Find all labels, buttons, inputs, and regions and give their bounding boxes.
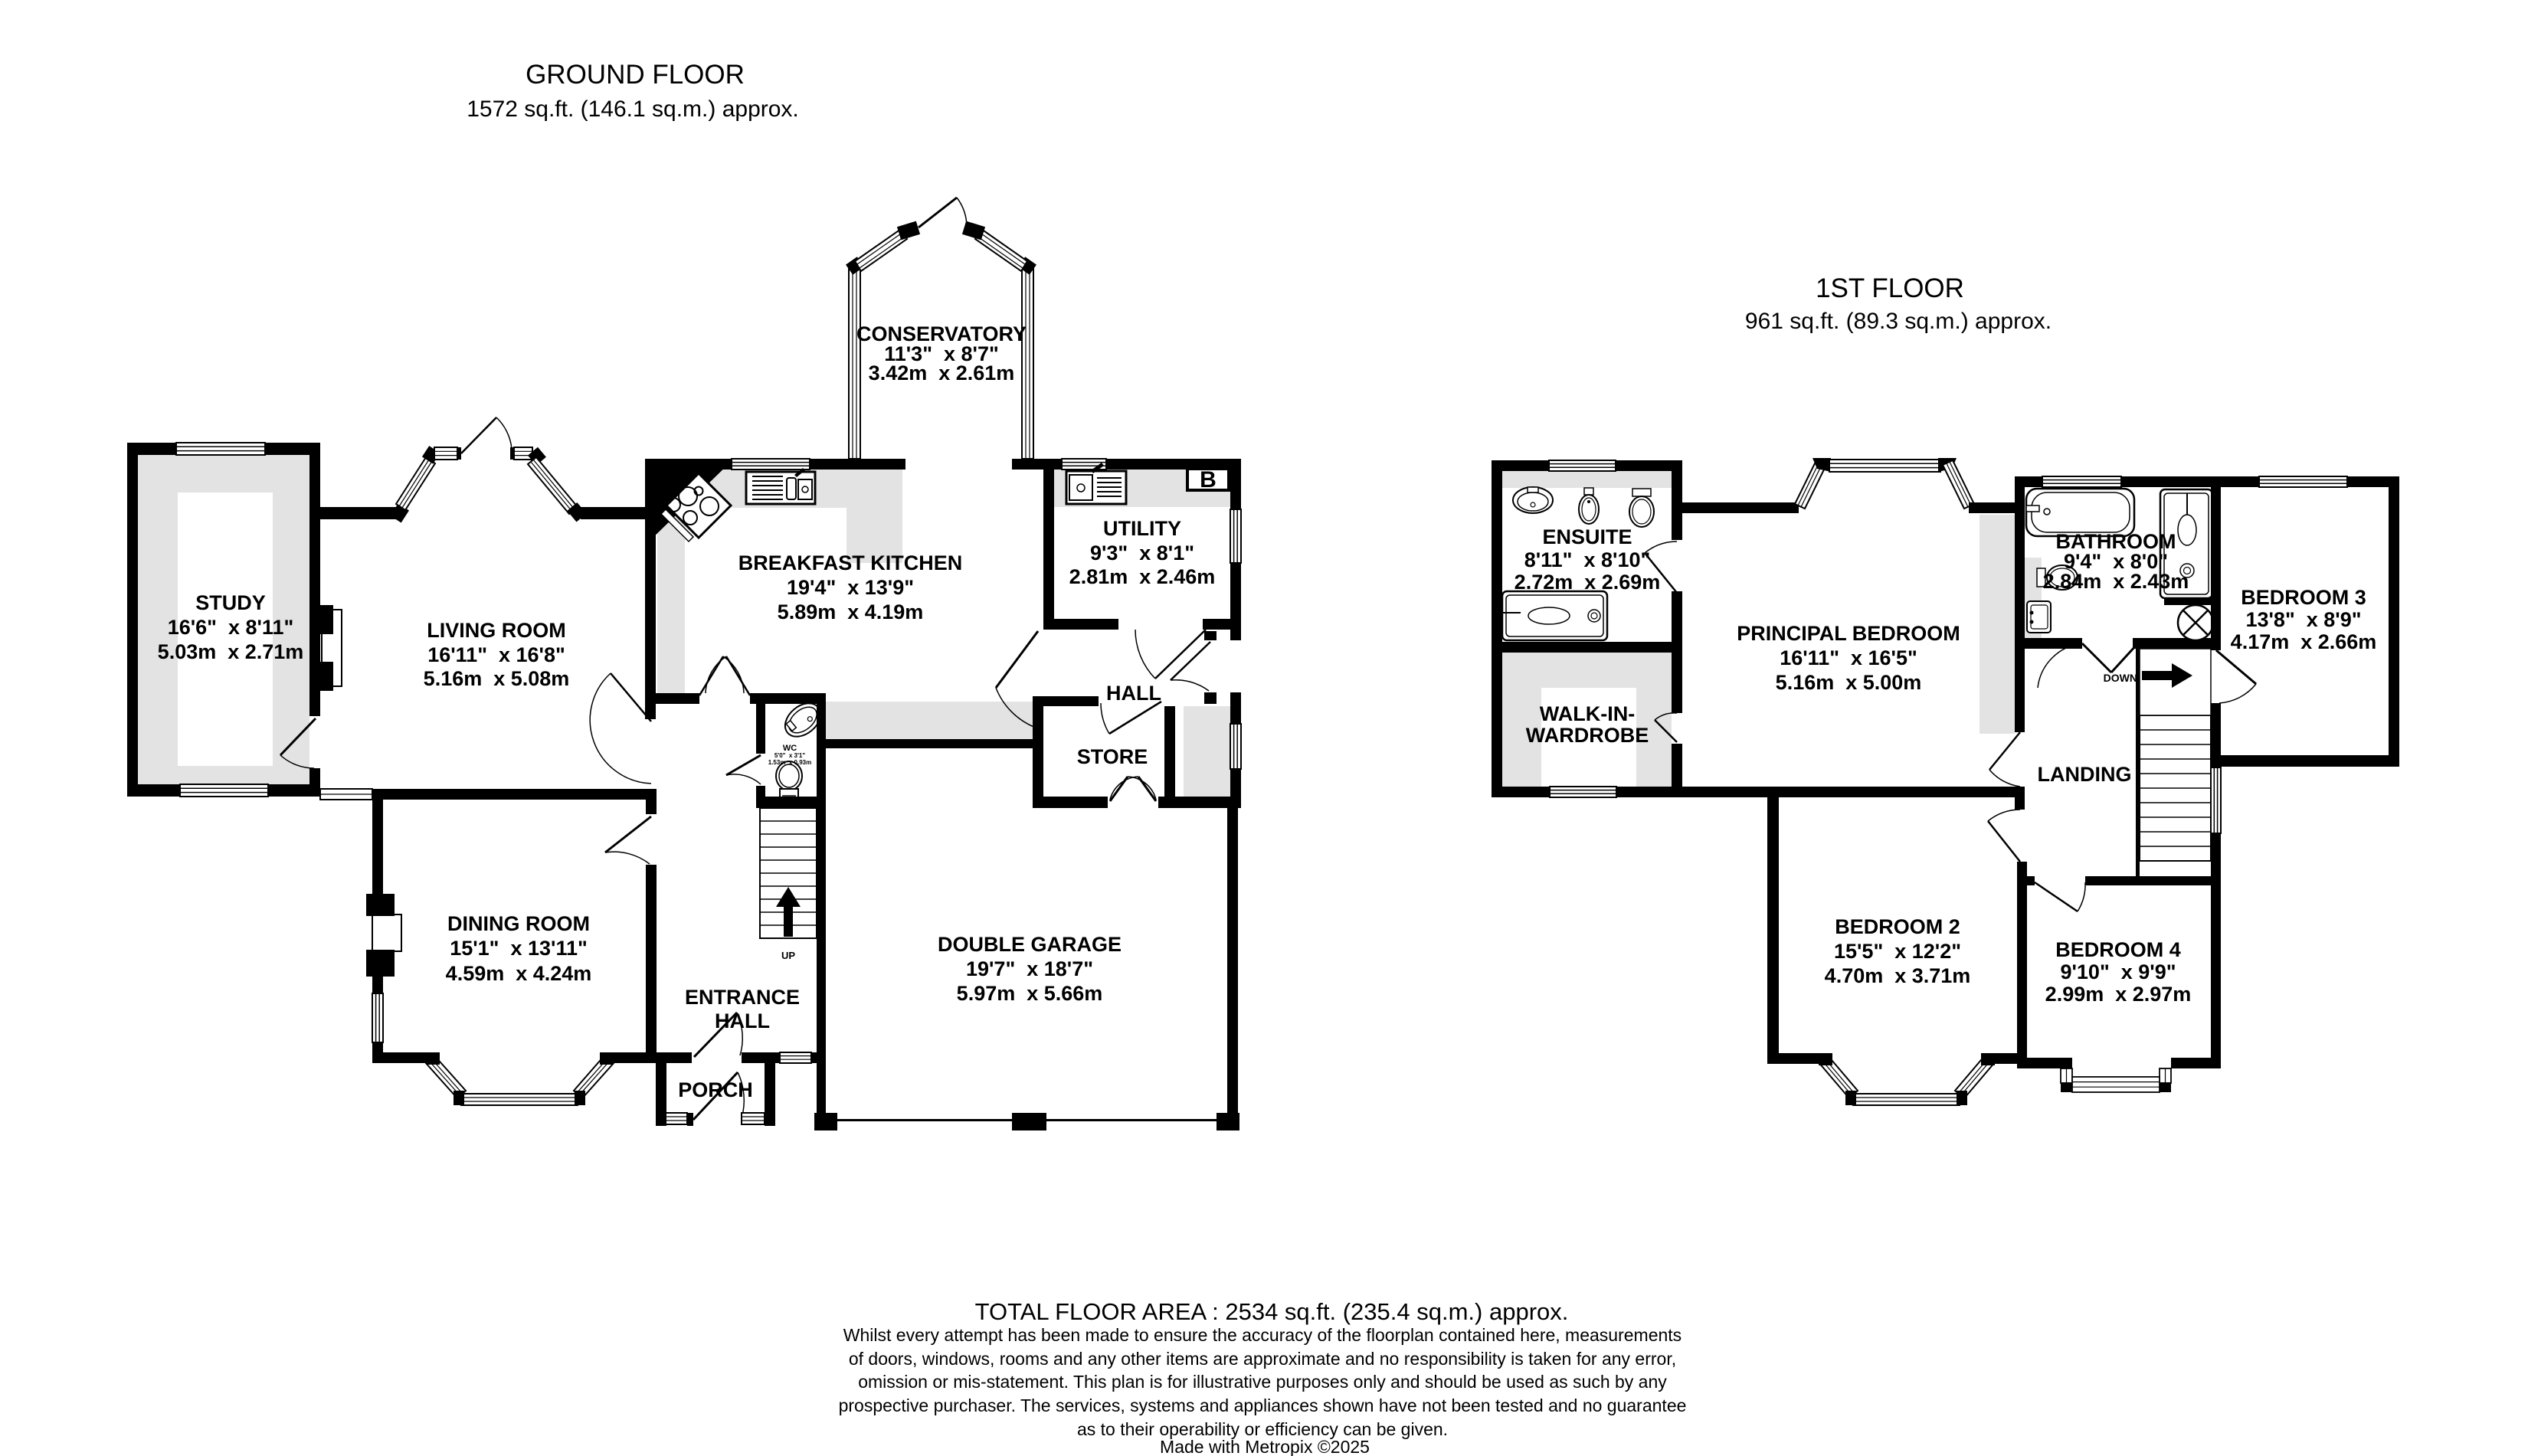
svg-text:16'6" x 8'11": 16'6" x 8'11" — [168, 616, 294, 639]
svg-text:Whilst every attempt has been: Whilst every attempt has been made to en… — [843, 1325, 1682, 1345]
svg-text:5.97m x 5.66m: 5.97m x 5.66m — [957, 982, 1103, 1005]
svg-text:5.16m x 5.00m: 5.16m x 5.00m — [1776, 671, 1922, 694]
svg-text:19'4" x 13'9": 19'4" x 13'9" — [787, 576, 914, 599]
svg-text:BEDROOM 4: BEDROOM 4 — [2055, 938, 2181, 961]
svg-text:4.59m x 4.24m: 4.59m x 4.24m — [446, 962, 592, 985]
svg-text:BEDROOM 2: BEDROOM 2 — [1835, 915, 1960, 938]
svg-text:16'11" x 16'5": 16'11" x 16'5" — [1780, 646, 1917, 669]
svg-text:HALL: HALL — [715, 1009, 770, 1032]
svg-text:TOTAL FLOOR AREA : 2534 sq.ft.: TOTAL FLOOR AREA : 2534 sq.ft. (235.4 sq… — [975, 1298, 1569, 1325]
svg-text:STORE: STORE — [1077, 745, 1148, 768]
svg-text:2.81m x 2.46m: 2.81m x 2.46m — [1069, 565, 1216, 588]
svg-text:DINING ROOM: DINING ROOM — [447, 912, 590, 935]
svg-text:of doors, windows, rooms and a: of doors, windows, rooms and any other i… — [849, 1349, 1676, 1369]
svg-text:2.84m x 2.43m: 2.84m x 2.43m — [2043, 570, 2189, 593]
svg-text:DOUBLE GARAGE: DOUBLE GARAGE — [938, 933, 1122, 956]
svg-text:5'0" x 3'1": 5'0" x 3'1" — [774, 752, 806, 759]
svg-text:8'11" x 8'10": 8'11" x 8'10" — [1524, 548, 1651, 571]
svg-text:2.72m x 2.69m: 2.72m x 2.69m — [1515, 571, 1661, 594]
svg-text:B: B — [1200, 467, 1217, 492]
svg-text:Made with Metropix ©2025: Made with Metropix ©2025 — [1160, 1437, 1370, 1456]
svg-text:ENSUITE: ENSUITE — [1542, 525, 1632, 548]
svg-text:15'5" x 12'2": 15'5" x 12'2" — [1834, 940, 1961, 963]
svg-text:omission or mis-statement. Thi: omission or mis-statement. This plan is … — [858, 1372, 1667, 1392]
svg-text:4.17m x 2.66m: 4.17m x 2.66m — [2231, 630, 2377, 653]
svg-text:PRINCIPAL BEDROOM: PRINCIPAL BEDROOM — [1737, 622, 1960, 645]
svg-text:UP: UP — [781, 950, 795, 961]
svg-text:19'7" x 18'7": 19'7" x 18'7" — [966, 957, 1093, 980]
svg-text:STUDY: STUDY — [195, 591, 266, 614]
svg-text:5.16m x 5.08m: 5.16m x 5.08m — [424, 667, 570, 690]
svg-text:3.42m x 2.61m: 3.42m x 2.61m — [869, 362, 1015, 384]
svg-text:1ST FLOOR: 1ST FLOOR — [1816, 273, 1964, 303]
svg-text:961 sq.ft. (89.3 sq.m.) approx: 961 sq.ft. (89.3 sq.m.) approx. — [1745, 309, 2052, 334]
svg-text:ENTRANCE: ENTRANCE — [685, 986, 800, 1009]
svg-text:DOWN: DOWN — [2104, 672, 2137, 684]
svg-text:5.03m x 2.71m: 5.03m x 2.71m — [158, 640, 304, 663]
svg-text:1.53m x 0.93m: 1.53m x 0.93m — [768, 759, 811, 766]
svg-text:WARDROBE: WARDROBE — [1526, 724, 1649, 747]
svg-text:9'3" x 8'1": 9'3" x 8'1" — [1090, 542, 1194, 564]
svg-text:prospective purchaser. The ser: prospective purchaser. The services, sys… — [839, 1395, 1687, 1415]
svg-text:LIVING ROOM: LIVING ROOM — [427, 619, 566, 642]
svg-text:HALL: HALL — [1106, 682, 1161, 705]
svg-text:2.99m x 2.97m: 2.99m x 2.97m — [2045, 983, 2192, 1006]
svg-text:LANDING: LANDING — [2038, 763, 2132, 786]
svg-text:BEDROOM 3: BEDROOM 3 — [2241, 586, 2366, 609]
svg-text:15'1" x 13'11": 15'1" x 13'11" — [450, 937, 588, 960]
svg-text:9'10" x 9'9": 9'10" x 9'9" — [2060, 960, 2176, 983]
svg-text:UTILITY: UTILITY — [1103, 517, 1181, 540]
svg-text:5.89m x 4.19m: 5.89m x 4.19m — [778, 600, 924, 623]
svg-text:4.70m x 3.71m: 4.70m x 3.71m — [1825, 964, 1971, 987]
svg-text:GROUND FLOOR: GROUND FLOOR — [526, 60, 745, 90]
svg-text:13'8" x 8'9": 13'8" x 8'9" — [2245, 608, 2361, 631]
svg-text:16'11" x 16'8": 16'11" x 16'8" — [427, 643, 565, 666]
svg-text:WALK-IN-: WALK-IN- — [1540, 702, 1635, 725]
svg-text:1572 sq.ft. (146.1 sq.m.) appr: 1572 sq.ft. (146.1 sq.m.) approx. — [467, 97, 799, 122]
svg-text:PORCH: PORCH — [678, 1078, 753, 1101]
svg-text:BREAKFAST KITCHEN: BREAKFAST KITCHEN — [738, 551, 963, 574]
